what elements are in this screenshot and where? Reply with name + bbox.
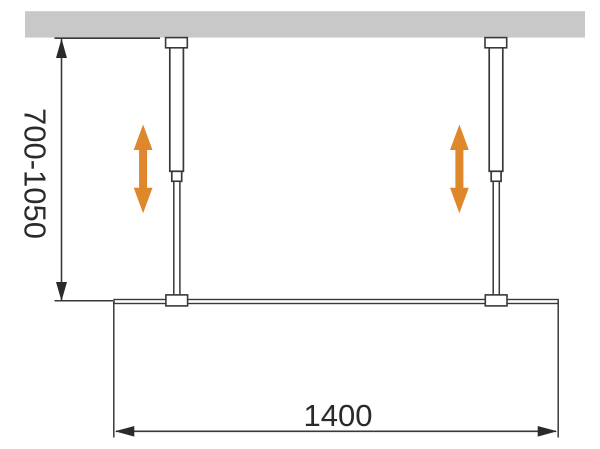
svg-text:700-1050: 700-1050 — [18, 108, 53, 239]
svg-text:1400: 1400 — [304, 398, 373, 433]
